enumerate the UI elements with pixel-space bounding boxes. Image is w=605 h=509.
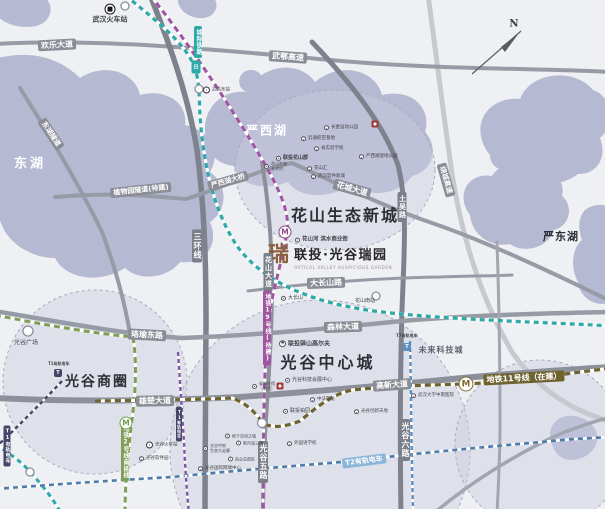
interchange-icon [372, 121, 379, 128]
poi: 省科技馆（新馆） [252, 381, 275, 391]
poi: 外国语学校 [287, 441, 317, 447]
lake-corner [0, 0, 51, 27]
poi: 光谷国际网球中心 [198, 466, 241, 472]
road-name-badge: 大长山路 [307, 277, 345, 290]
area-label: 光谷中心城 [280, 349, 375, 373]
interchange-icon [277, 383, 284, 390]
water-label: 严西湖 [246, 122, 288, 139]
poi: 武汉软件新城 [311, 174, 345, 180]
poi-icon [203, 446, 208, 451]
poi-icon [359, 155, 364, 160]
road-name-vertical: 光谷五路 [258, 441, 268, 483]
poi-icon [264, 164, 269, 169]
poi-label: 花山生态艺术村 [271, 161, 287, 171]
poi-label: 省科技馆（新馆） [259, 381, 275, 391]
poi-label: 光谷广场 [14, 339, 38, 347]
poi-icon [314, 147, 319, 152]
poi-icon [139, 457, 144, 462]
poi-icon [354, 410, 359, 415]
poi-label: 武昌东站 [212, 87, 230, 93]
road-name-badge: 森林大道 [324, 321, 362, 334]
poi: 光谷广场 [14, 339, 38, 347]
poi-label: 光谷创新天地 [361, 409, 388, 415]
golf-icon [279, 341, 286, 348]
poi-icon [283, 409, 288, 414]
poi-label: 花山河 滨水商业街 [302, 237, 348, 244]
poi-label: 外国语学校 [294, 441, 317, 447]
poi-label: 光谷科技会展中心 [292, 377, 332, 383]
train-sm-icon [146, 442, 153, 449]
poi: 花山汇 [307, 166, 328, 172]
poi-label: 花山南站 [355, 298, 375, 304]
poi-label: 武汉大学中南医院 [418, 393, 454, 399]
transit-line-badge: 地铁19号线(待建) [263, 291, 271, 366]
poi-icon [198, 467, 203, 472]
project-name-en: OPTICAL VALLEY AUSPICIOUS GARDEN [294, 265, 392, 270]
train-sm-icon [203, 87, 210, 94]
train-icon [105, 4, 116, 15]
tram-icon: T [403, 343, 411, 351]
tram-line-label: T7有轨电车 [396, 333, 418, 339]
station-marker [195, 85, 203, 93]
road-name-badge: 欢乐大道 [38, 38, 77, 51]
poi-icon [310, 398, 315, 403]
poi-label: 大长山 [288, 295, 303, 301]
poi-label-line2: 生态大走廊 [210, 448, 230, 453]
poi-label-line2: （新馆） [259, 386, 275, 391]
metro-station-m-icon: M [120, 417, 133, 430]
tram-icon: T [54, 369, 62, 377]
poi-icon [236, 441, 241, 446]
lake-small-top [178, 0, 217, 18]
poi-label: 光谷中央生态大走廊 [210, 443, 230, 453]
poi-label: 中法医院 [317, 397, 335, 403]
area-label: 花山生态新城 [291, 202, 399, 226]
poi-icon [228, 457, 233, 462]
poi: 联投铂园 [283, 408, 310, 414]
poi-icon [307, 167, 312, 172]
poi-label: 央企总部区 [235, 457, 255, 462]
transit-line-badge: 地铁2号线南延线 [121, 423, 129, 482]
poi: 光谷软件园 [139, 456, 169, 462]
project-logo: 瑞 联投·光谷瑞园 OPTICAL VALLEY AUSPICIOUS GARD… [268, 244, 392, 270]
poi-icon [276, 156, 281, 161]
poi: 武汉大学中南医院 [411, 393, 454, 399]
poi: 严西湖湿地公园 [359, 154, 398, 160]
poi: 云通航空基地 [301, 136, 335, 142]
poi-label: 省实验学校 [321, 146, 344, 152]
poi-label: 云通航空基地 [308, 136, 335, 142]
poi-label: 长金运动公园 [331, 125, 358, 131]
area-label: 未来科技城 [419, 345, 464, 356]
poi-label: 光谷火车站 [155, 442, 178, 448]
lake-yandong-north [480, 75, 605, 183]
poi: 长金运动公园 [324, 125, 358, 131]
poi: 光谷创新天地 [354, 409, 388, 415]
poi-label: 联投驿山高尔夫 [288, 340, 330, 348]
poi-icon [324, 126, 329, 131]
road-name-vertical: 土吴路 [398, 192, 407, 222]
poi-icon [295, 238, 300, 243]
poi-label: 地下空间之城 [232, 434, 256, 439]
road-name-badge: 珞瑜东路 [128, 328, 167, 341]
poi-label: 新月溪公园 [243, 441, 263, 446]
poi: 大长山 [281, 295, 303, 301]
poi-label: 光谷软件园 [146, 456, 169, 462]
road-name-badge: 雄楚大道 [136, 395, 174, 407]
poi: 光谷科技会展中心 [285, 377, 332, 383]
poi: 花山生态艺术村 [264, 161, 287, 171]
poi-label: 光谷国际网球中心 [205, 466, 241, 472]
road-name-vertical: 光谷六路 [400, 419, 410, 461]
poi-icon [301, 137, 306, 142]
tram-line-label: T1有轨电车 [48, 361, 70, 367]
project-name: 联投·光谷瑞园 [294, 244, 392, 263]
mountain-icon [281, 296, 286, 301]
road-name-vertical: 花山大道 [264, 253, 273, 291]
poi: 花山南站 [355, 298, 375, 304]
station-marker [26, 468, 34, 476]
station-marker [258, 419, 267, 428]
poi: 中法医院 [310, 397, 335, 403]
poi: 央企总部区 [228, 457, 255, 462]
poi-icon [287, 442, 292, 447]
compass-north-label: N [509, 19, 518, 30]
poi-icon [285, 378, 290, 383]
poi: 省实验学校 [314, 146, 344, 152]
poi: 联投驿山高尔夫 [279, 340, 330, 348]
water-label: 东湖 [14, 153, 46, 172]
poi-icon [225, 434, 230, 439]
poi-icon [252, 384, 257, 389]
metro-station-m-icon: M [279, 226, 292, 239]
poi: 武昌东站 [203, 87, 230, 94]
poi-label: 武汉软件新城 [318, 174, 345, 180]
transit-line-badge: 城际铁路 [194, 26, 202, 58]
transit-line-badge: T1有轨电车 [4, 426, 11, 467]
poi-icon [411, 394, 416, 399]
poi-label: 严西湖湿地公园 [366, 154, 398, 160]
poi: 光谷火车站 [146, 442, 178, 449]
poi: 武汉火车站 [93, 4, 128, 25]
poi-label: 联投铂园 [290, 408, 310, 414]
poi: 光谷中央生态大走廊 [203, 443, 230, 453]
location-map: N 瑞 联投·光谷瑞园 OPTICAL VALLEY AUSPICIOUS GA… [0, 0, 605, 509]
metro-station-m-icon: M [459, 377, 474, 392]
poi: 花山河 滨水商业街 [295, 237, 348, 244]
poi-icon [311, 175, 316, 180]
station-marker [23, 326, 33, 336]
poi-label: 武汉火车站 [93, 16, 128, 25]
road-name-vertical: 三环线 [192, 230, 202, 263]
transit-line-badge: T1有轨电车 [176, 407, 182, 442]
area-label: 严东湖 [543, 228, 579, 244]
poi: 地下空间之城 [225, 434, 256, 439]
area-label: 光谷商圈 [65, 371, 129, 391]
poi-label: 花山汇 [314, 166, 328, 172]
tram-icon: ⊟ [192, 61, 201, 74]
poi-label-line2: 艺术村 [271, 166, 287, 171]
poi: 新月溪公园 [236, 441, 263, 446]
